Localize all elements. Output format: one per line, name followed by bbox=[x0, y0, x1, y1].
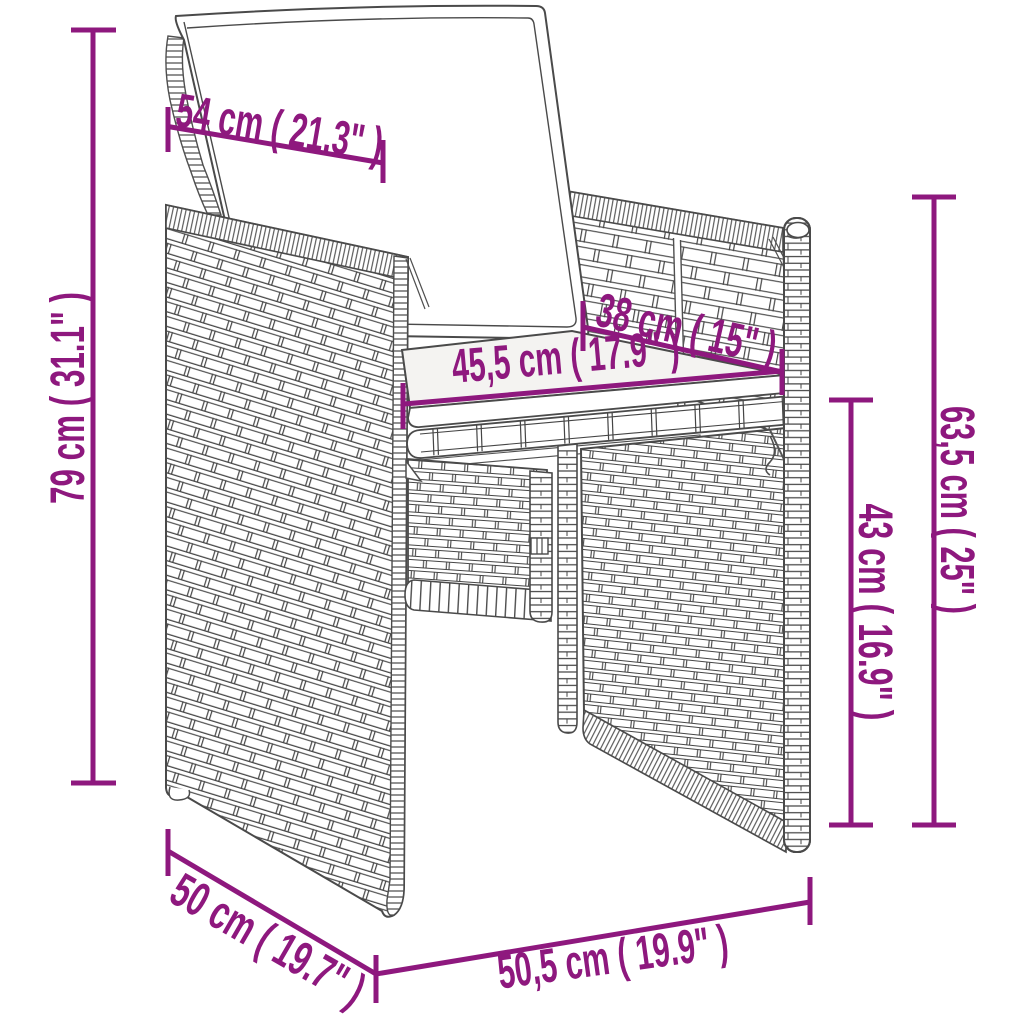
svg-text:79 cm ( 31.1" ): 79 cm ( 31.1" ) bbox=[42, 292, 95, 504]
svg-text:63,5 cm ( 25" ): 63,5 cm ( 25" ) bbox=[930, 406, 983, 614]
svg-text:43 cm ( 16.9" ): 43 cm ( 16.9" ) bbox=[848, 504, 901, 721]
